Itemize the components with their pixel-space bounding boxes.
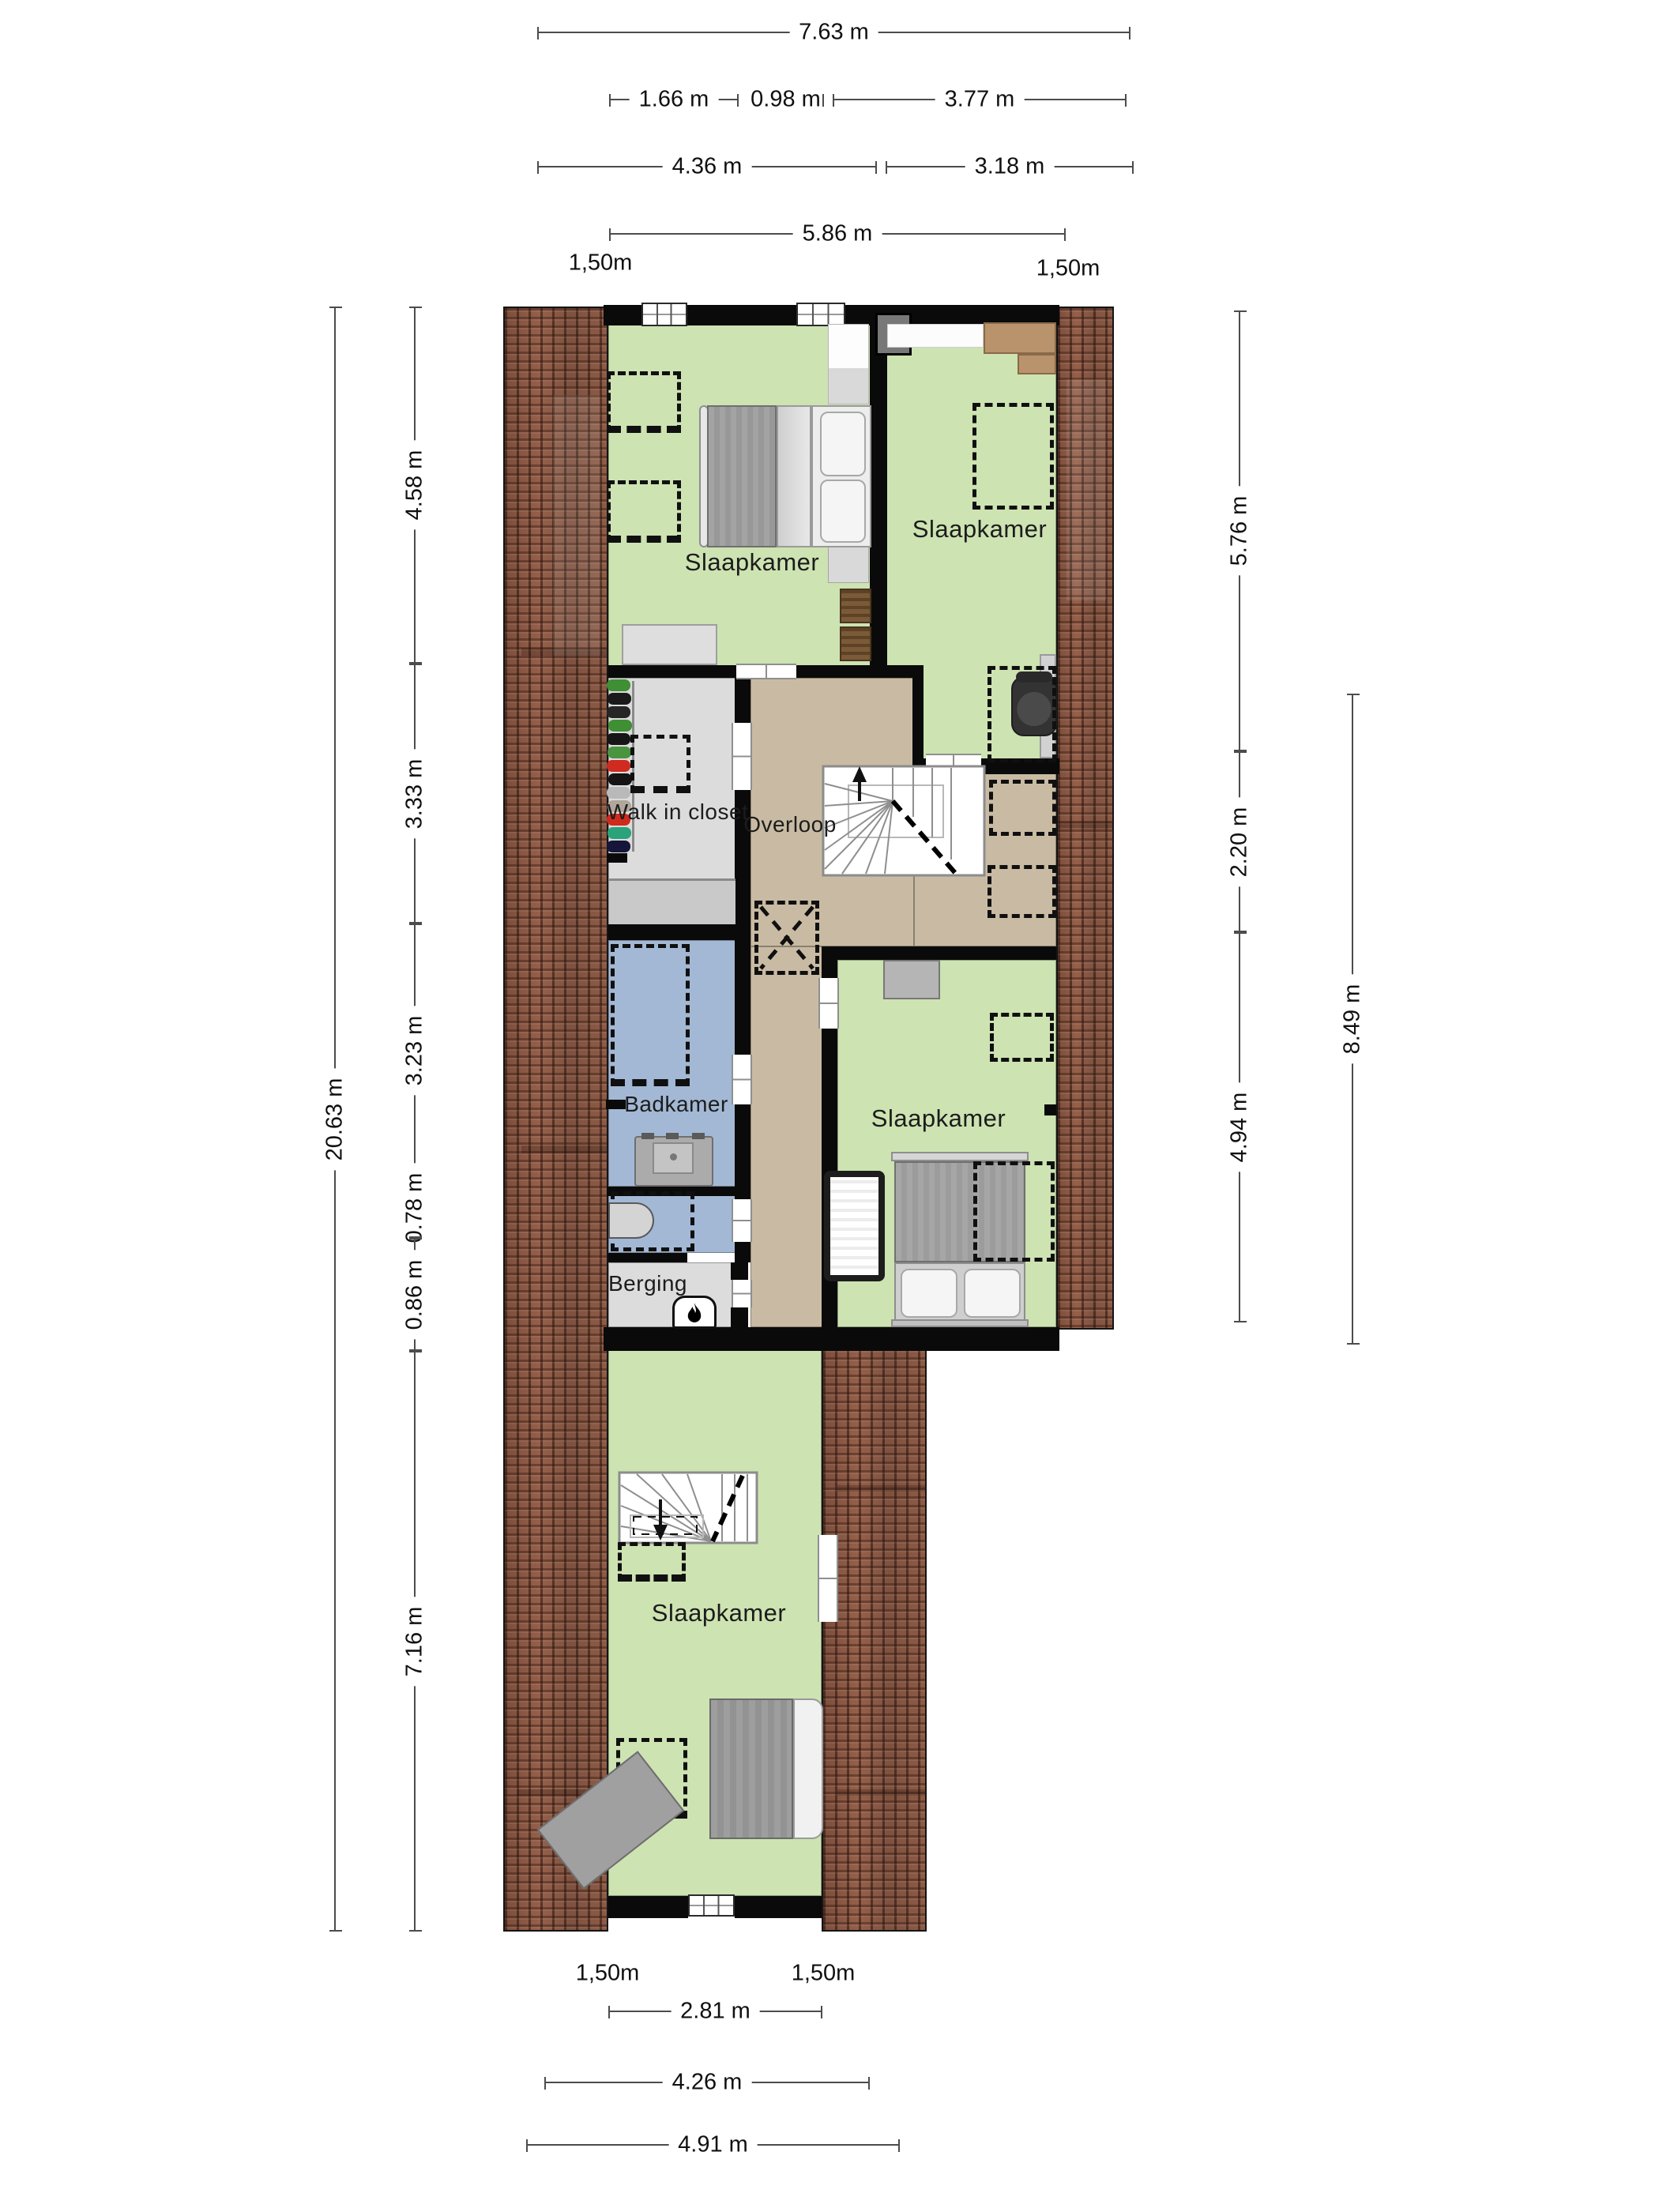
clothes-item: [608, 773, 632, 785]
dim-height: 3.33 m: [414, 664, 416, 924]
room-label-landing: Overloop: [743, 812, 837, 837]
roof-band-right-wing: [822, 1347, 927, 1932]
dim-width: 1.66 m: [609, 99, 739, 100]
dormer-outline: [972, 403, 1054, 510]
window: [796, 303, 845, 326]
dim-height: 8.49 m: [1352, 694, 1353, 1345]
pillow: [820, 412, 866, 476]
nightstand: [828, 545, 869, 583]
bed-sheet: [777, 405, 811, 547]
clothes-item: [607, 841, 630, 852]
room-label-bedroom-top-right: Slaapkamer: [912, 515, 1047, 544]
dim-height: 4.94 m: [1239, 932, 1240, 1322]
wardrobe: [828, 324, 869, 404]
wall-segment: [735, 1896, 822, 1918]
door-opening: [732, 1280, 752, 1307]
dormer-outline: [630, 735, 690, 793]
shelf-desk: [984, 322, 1056, 354]
dormer-outline: [618, 1542, 686, 1582]
dim-width: 4.36 m: [537, 166, 877, 167]
clothes-item: [607, 706, 630, 718]
dormer-outline: [607, 480, 681, 543]
closet-rail-end: [607, 853, 627, 863]
pillow: [964, 1269, 1021, 1318]
clothes-item: [607, 679, 630, 691]
dormer-outline: [607, 371, 681, 433]
window: [688, 1894, 735, 1917]
wall-segment: [735, 1187, 750, 1199]
vanity-tap: [666, 1133, 679, 1139]
dim-height: 0.86 m: [414, 1238, 416, 1351]
dim-total-width: 7.63 m: [537, 32, 1130, 33]
door-opening: [732, 723, 752, 790]
radiator-panel: [824, 1171, 885, 1281]
dim-height: 0.78 m: [414, 1177, 416, 1238]
shelf-desk: [1018, 354, 1056, 374]
clothes-item: [608, 827, 631, 839]
door-opening: [818, 978, 839, 1029]
desk-zone-outline: [987, 666, 1056, 762]
room-label-bedroom-top-left: Slaapkamer: [685, 548, 819, 577]
roof-shading: [1058, 822, 1112, 828]
door-opening: [736, 664, 796, 679]
wall-segment: [608, 665, 736, 678]
roof-width-label: 1,50m: [569, 250, 633, 276]
room-label-storage: Berging: [608, 1271, 687, 1296]
dim-width: 3.77 m: [833, 99, 1127, 100]
roof-shading: [521, 1145, 607, 1153]
bed-footbar: [891, 1319, 1029, 1327]
door-opening: [818, 1535, 838, 1622]
wall-segment: [735, 940, 750, 1055]
dim-width: 0.98 m: [747, 99, 824, 100]
roof-width-label: 1,50m: [576, 1961, 640, 1987]
wall-segment: [608, 924, 750, 940]
roof-shading: [1066, 379, 1106, 600]
wall-segment: [731, 1307, 748, 1327]
dim-width: 2.81 m: [608, 2011, 822, 2012]
roof-shading: [837, 1485, 925, 1492]
hall-strip: [887, 324, 984, 348]
dormer-outline: [989, 780, 1056, 836]
clothes-item: [608, 720, 632, 732]
dormer-outline: [990, 1013, 1054, 1062]
closet-cabinet: [609, 878, 735, 924]
toilet: [608, 1202, 654, 1239]
roof-shading: [553, 395, 600, 656]
bed-headbar: [891, 1152, 1029, 1161]
faucet-dot: [670, 1153, 677, 1161]
clothes-item: [607, 787, 630, 799]
wall-segment: [796, 665, 871, 678]
staircase-up: [822, 765, 986, 877]
dim-height: 2.20 m: [1239, 751, 1240, 932]
dim-width: 5.86 m: [609, 233, 1066, 235]
dim-width: 3.18 m: [886, 166, 1134, 167]
pillow: [820, 480, 866, 543]
roof-shading: [837, 1789, 925, 1796]
staircase-down: [618, 1471, 758, 1544]
wall-segment: [735, 1104, 750, 1187]
floor-corridor: [750, 946, 823, 1327]
bed-duvet: [707, 405, 777, 547]
wall-segment: [822, 946, 837, 978]
dormer-outline: [973, 1161, 1055, 1262]
clothes-item: [607, 733, 630, 745]
roof-width-label: 1,50m: [1036, 256, 1100, 282]
window: [641, 303, 687, 326]
clothes-item: [608, 693, 631, 705]
wall-segment: [735, 1242, 750, 1262]
wall-stub: [1044, 1104, 1056, 1115]
door-opening: [732, 1055, 752, 1104]
wall-stub: [606, 1100, 626, 1109]
dim-width: 4.91 m: [526, 2144, 900, 2146]
dim-total-height: 20.63 m: [334, 307, 336, 1932]
clothes-item: [607, 760, 630, 772]
dim-height: 7.16 m: [414, 1351, 416, 1932]
clothes-item: [608, 747, 631, 758]
pillow: [901, 1269, 957, 1318]
wall-segment: [735, 678, 750, 723]
dormer-outline: [611, 944, 690, 1086]
room-label-bathroom: Badkamer: [624, 1092, 728, 1117]
wall-segment: [837, 946, 1056, 960]
wall-segment: [608, 1896, 688, 1918]
room-label-bedroom-middle: Slaapkamer: [871, 1104, 1006, 1133]
dim-width: 4.26 m: [544, 2082, 870, 2083]
dim-height: 5.76 m: [1239, 310, 1240, 751]
wall-party: [870, 305, 887, 678]
dormer-outline: [987, 865, 1056, 918]
dim-height: 3.23 m: [414, 924, 416, 1177]
vanity-tap: [641, 1133, 654, 1139]
vanity-tap: [692, 1133, 705, 1139]
chair: [840, 589, 871, 623]
room-label-bedroom-bottom: Slaapkamer: [652, 1599, 786, 1627]
door-opening: [732, 1199, 752, 1242]
chair: [840, 626, 871, 661]
dim-height: 4.58 m: [414, 307, 416, 664]
boiler: [672, 1296, 717, 1329]
floorplan-canvas: Slaapkamer Slaapkamer Walk in closet: [0, 0, 1659, 2212]
wall-segment: [912, 665, 924, 773]
cabinet: [883, 960, 940, 999]
roof-width-label: 1,50m: [792, 1961, 856, 1987]
void-outline: [754, 901, 819, 975]
wall-segment: [731, 1262, 748, 1280]
bed-duvet: [709, 1698, 793, 1839]
wall-segment: [608, 1253, 687, 1262]
dresser: [622, 624, 717, 665]
room-label-walk-in-closet: Walk in closet: [608, 799, 749, 825]
bed-sheet: [793, 1698, 823, 1839]
wall-bottom-main: [604, 1327, 1059, 1351]
